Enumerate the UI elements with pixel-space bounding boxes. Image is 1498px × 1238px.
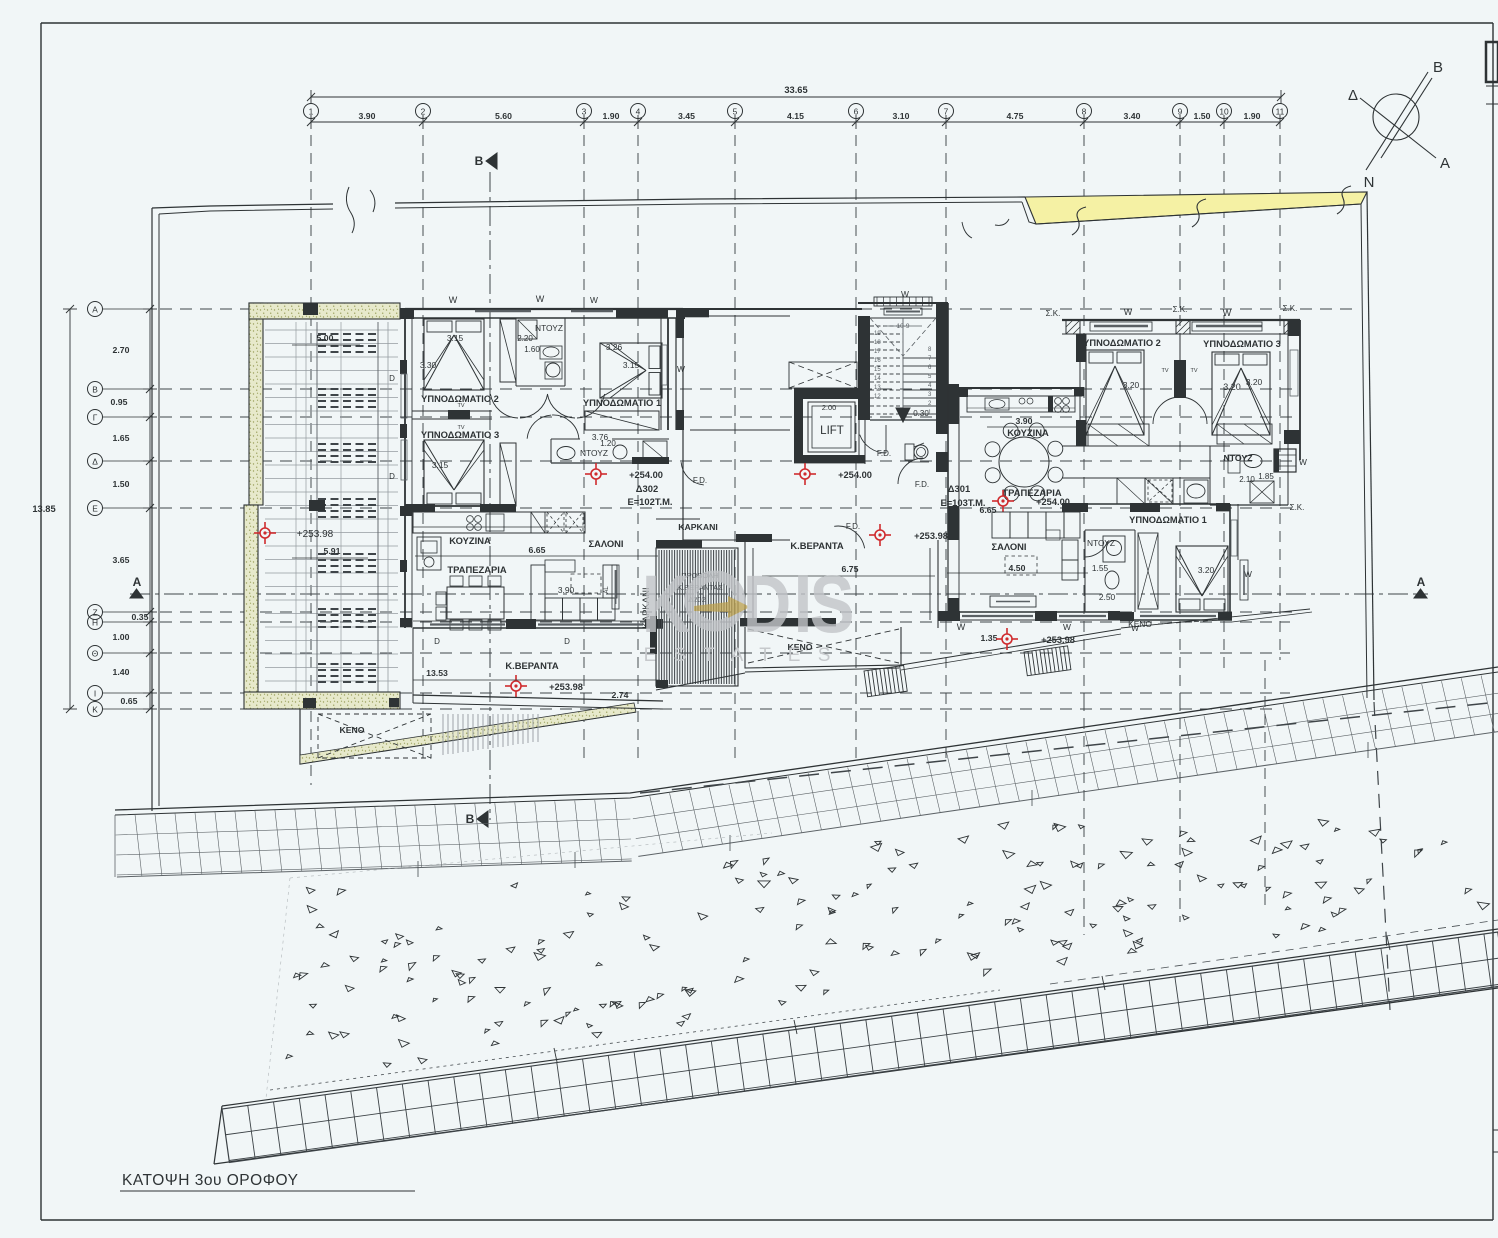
svg-text:13.53: 13.53 <box>426 668 448 678</box>
svg-text:W: W <box>901 289 909 299</box>
svg-text:ΝΤΟΥΖ: ΝΤΟΥΖ <box>1223 453 1253 463</box>
svg-text:S: S <box>810 558 855 650</box>
svg-text:D: D <box>743 558 792 650</box>
svg-text:13: 13 <box>874 385 881 391</box>
svg-text:33.65: 33.65 <box>784 85 807 95</box>
svg-text:W: W <box>1223 308 1232 318</box>
svg-text:9: 9 <box>1178 107 1183 117</box>
svg-text:2: 2 <box>421 107 426 117</box>
svg-text:4.75: 4.75 <box>1007 111 1024 121</box>
svg-text:13.85: 13.85 <box>32 504 55 514</box>
svg-text:3.10: 3.10 <box>893 111 910 121</box>
svg-text:Γ: Γ <box>93 413 98 423</box>
svg-text:3.26: 3.26 <box>606 342 623 352</box>
svg-text:2.10: 2.10 <box>1239 475 1255 484</box>
svg-text:7: 7 <box>944 107 949 117</box>
svg-text:ΝΤΟΥΖ: ΝΤΟΥΖ <box>580 448 608 458</box>
svg-text:ΥΠΝΟΔΩΜΑΤΙΟ 1: ΥΠΝΟΔΩΜΑΤΙΟ 1 <box>1129 515 1207 525</box>
svg-text:W: W <box>677 364 685 374</box>
svg-text:Δ302: Δ302 <box>636 483 658 494</box>
svg-text:11: 11 <box>1276 107 1285 117</box>
svg-text:ΥΠΝΟΔΩΜΑΤΙΟ 3: ΥΠΝΟΔΩΜΑΤΙΟ 3 <box>421 429 499 440</box>
svg-text:3.15: 3.15 <box>623 360 640 370</box>
svg-text:3.90: 3.90 <box>1016 416 1033 426</box>
svg-text:W: W <box>957 622 966 632</box>
svg-text:LIFT: LIFT <box>820 425 844 437</box>
svg-text:2.00: 2.00 <box>792 425 802 442</box>
svg-text:F.D.: F.D. <box>915 480 929 489</box>
svg-text:1.00: 1.00 <box>113 632 130 642</box>
svg-text:W: W <box>590 295 598 305</box>
svg-text:5: 5 <box>733 107 738 117</box>
svg-text:3.40: 3.40 <box>1124 111 1141 121</box>
svg-text:3.20: 3.20 <box>1246 377 1263 387</box>
svg-text:2.74: 2.74 <box>612 690 629 700</box>
svg-text:Α: Α <box>92 305 98 315</box>
svg-text:W: W <box>1124 307 1133 317</box>
svg-text:Ι: Ι <box>94 689 96 699</box>
svg-text:Σ.Κ.: Σ.Κ. <box>1290 503 1305 512</box>
svg-text:F.D.: F.D. <box>846 522 860 531</box>
svg-text:Ζ: Ζ <box>92 608 97 618</box>
svg-text:3.20: 3.20 <box>1198 565 1215 575</box>
svg-text:+253.98: +253.98 <box>297 529 334 540</box>
svg-text:E=102Τ.Μ.: E=102Τ.Μ. <box>627 496 672 507</box>
svg-text:6: 6 <box>854 107 859 117</box>
svg-text:N: N <box>1364 174 1375 191</box>
svg-text:Δ: Δ <box>92 457 98 467</box>
svg-text:ΤΡΑΠΕΖΑΡΙΑ: ΤΡΑΠΕΖΑΡΙΑ <box>447 564 506 575</box>
svg-text:Δ301: Δ301 <box>948 483 970 494</box>
svg-text:W: W <box>449 295 458 305</box>
svg-text:Σ.Κ.: Σ.Κ. <box>1173 305 1188 314</box>
svg-text:ΚΑΡΚΑΝΙ: ΚΑΡΚΑΝΙ <box>678 522 718 532</box>
svg-text:D: D <box>389 472 395 481</box>
svg-text:ΝΤΟΥΖ: ΝΤΟΥΖ <box>1087 538 1115 548</box>
svg-text:W: W <box>1063 622 1071 632</box>
svg-text:3: 3 <box>582 107 587 117</box>
svg-text:5.00: 5.00 <box>317 333 334 343</box>
svg-text:1.20: 1.20 <box>600 439 616 448</box>
svg-text:2.00: 2.00 <box>822 403 837 412</box>
svg-text:W: W <box>536 294 545 304</box>
svg-text:W: W <box>1131 624 1139 633</box>
svg-text:4: 4 <box>636 107 641 117</box>
svg-text:+253.98: +253.98 <box>1041 635 1075 645</box>
svg-text:17: 17 <box>874 349 881 355</box>
svg-text:2.70: 2.70 <box>113 345 130 355</box>
svg-text:0.35: 0.35 <box>132 612 149 622</box>
svg-text:1.40: 1.40 <box>113 667 130 677</box>
svg-text:AL: AL <box>604 586 610 594</box>
svg-text:1.65: 1.65 <box>113 433 130 443</box>
svg-text:ΚΕΝΟ: ΚΕΝΟ <box>339 725 364 735</box>
svg-text:Σ.Κ.: Σ.Κ. <box>1046 309 1061 318</box>
svg-text:B: B <box>1433 59 1443 76</box>
svg-text:ΚΟΥΖΙΝΑ: ΚΟΥΖΙΝΑ <box>449 535 491 546</box>
svg-text:D: D <box>389 374 395 383</box>
svg-text:5.91: 5.91 <box>324 546 341 556</box>
svg-text:Κ: Κ <box>92 705 98 715</box>
svg-text:TV: TV <box>1190 368 1197 374</box>
svg-text:1.60: 1.60 <box>524 345 540 354</box>
svg-text:+254.00: +254.00 <box>838 470 872 480</box>
svg-text:4.50: 4.50 <box>1009 563 1026 573</box>
svg-text:Κ.ΒΕΡΑΝΤΑ: Κ.ΒΕΡΑΝΤΑ <box>505 660 559 671</box>
svg-text:1: 1 <box>309 107 314 117</box>
svg-text:Θ: Θ <box>92 649 99 659</box>
svg-text:F.D.: F.D. <box>693 476 707 485</box>
svg-text:D: D <box>434 637 440 646</box>
svg-text:Κ.ΒΕΡΑΝΤΑ: Κ.ΒΕΡΑΝΤΑ <box>790 540 844 551</box>
svg-text:10: 10 <box>1219 107 1229 117</box>
svg-text:3.20: 3.20 <box>1123 380 1140 390</box>
svg-text:12: 12 <box>874 394 881 400</box>
svg-text:8: 8 <box>1082 107 1087 117</box>
svg-text:ΣΑΛΟΝΙ: ΣΑΛΟΝΙ <box>991 541 1026 552</box>
svg-text:16: 16 <box>874 358 881 364</box>
svg-text:TV: TV <box>457 403 464 409</box>
svg-text:D: D <box>564 637 570 646</box>
svg-text:3.20: 3.20 <box>1223 382 1241 392</box>
svg-text:3.15: 3.15 <box>432 460 449 470</box>
svg-text:1.85: 1.85 <box>1258 472 1274 481</box>
svg-text:1.50: 1.50 <box>1194 111 1211 121</box>
svg-text:0.65: 0.65 <box>121 696 138 706</box>
svg-text:0.95: 0.95 <box>111 397 128 407</box>
svg-text:Ε: Ε <box>92 504 98 514</box>
svg-text:5.60: 5.60 <box>495 111 512 121</box>
svg-text:3.45: 3.45 <box>678 111 695 121</box>
svg-text:1.35: 1.35 <box>981 633 998 643</box>
svg-text:E S T A T E S: E S T A T E S <box>644 645 837 666</box>
svg-text:6.65: 6.65 <box>980 505 997 515</box>
svg-text:B: B <box>475 154 484 168</box>
svg-text:ΥΠΝΟΔΩΜΑΤΙΟ 2: ΥΠΝΟΔΩΜΑΤΙΟ 2 <box>1083 338 1161 348</box>
svg-text:0.30: 0.30 <box>913 409 929 418</box>
svg-text:Η: Η <box>92 618 98 628</box>
svg-text:1.55: 1.55 <box>1092 563 1109 573</box>
svg-text:3.90: 3.90 <box>359 111 376 121</box>
svg-text:A: A <box>1440 155 1450 172</box>
svg-text:A: A <box>133 575 142 589</box>
svg-text:18: 18 <box>874 340 881 346</box>
svg-text:2.20: 2.20 <box>517 334 533 343</box>
svg-text:3.90: 3.90 <box>558 585 575 595</box>
svg-text:K: K <box>642 558 691 650</box>
svg-text:Σ.Κ.: Σ.Κ. <box>1283 304 1298 313</box>
svg-text:A: A <box>1417 575 1426 589</box>
svg-text:ΚΑΤΟΨΗ 3ου ΟΡΟΦΟΥ: ΚΑΤΟΨΗ 3ου ΟΡΟΦΟΥ <box>122 1172 298 1189</box>
svg-text:6.65: 6.65 <box>529 545 546 555</box>
svg-text:+254.00: +254.00 <box>629 470 663 480</box>
svg-text:1.90: 1.90 <box>1244 111 1261 121</box>
svg-text:10-9: 10-9 <box>896 323 909 330</box>
svg-text:15: 15 <box>874 367 881 373</box>
svg-text:1.50: 1.50 <box>113 479 130 489</box>
svg-text:Δ: Δ <box>1348 87 1358 104</box>
svg-text:1.90: 1.90 <box>603 111 620 121</box>
svg-text:19: 19 <box>874 331 881 337</box>
svg-text:3.30: 3.30 <box>420 360 437 370</box>
svg-text:ΣΑΛΟΝΙ: ΣΑΛΟΝΙ <box>588 538 623 549</box>
svg-text:3.65: 3.65 <box>113 555 130 565</box>
svg-text:ΥΠΝΟΔΩΜΑΤΙΟ 1: ΥΠΝΟΔΩΜΑΤΙΟ 1 <box>583 397 661 408</box>
svg-text:W: W <box>1299 457 1307 467</box>
svg-text:ΝΤΟΥΖ: ΝΤΟΥΖ <box>535 323 563 333</box>
svg-text:ΚΟΥΖΙΝΑ: ΚΟΥΖΙΝΑ <box>1007 427 1049 438</box>
svg-text:4.15: 4.15 <box>787 111 804 121</box>
svg-text:+253.98: +253.98 <box>549 682 583 692</box>
svg-text:+253.98: +253.98 <box>914 531 948 541</box>
svg-text:3.15: 3.15 <box>447 333 464 343</box>
svg-text:2.50: 2.50 <box>1099 592 1116 602</box>
svg-text:Β: Β <box>92 385 98 395</box>
svg-text:TV: TV <box>1161 368 1168 374</box>
svg-text:F.D.: F.D. <box>877 449 891 458</box>
svg-text:14: 14 <box>874 376 881 382</box>
svg-text:ΥΠΝΟΔΩΜΑΤΙΟ 3: ΥΠΝΟΔΩΜΑΤΙΟ 3 <box>1203 339 1281 349</box>
